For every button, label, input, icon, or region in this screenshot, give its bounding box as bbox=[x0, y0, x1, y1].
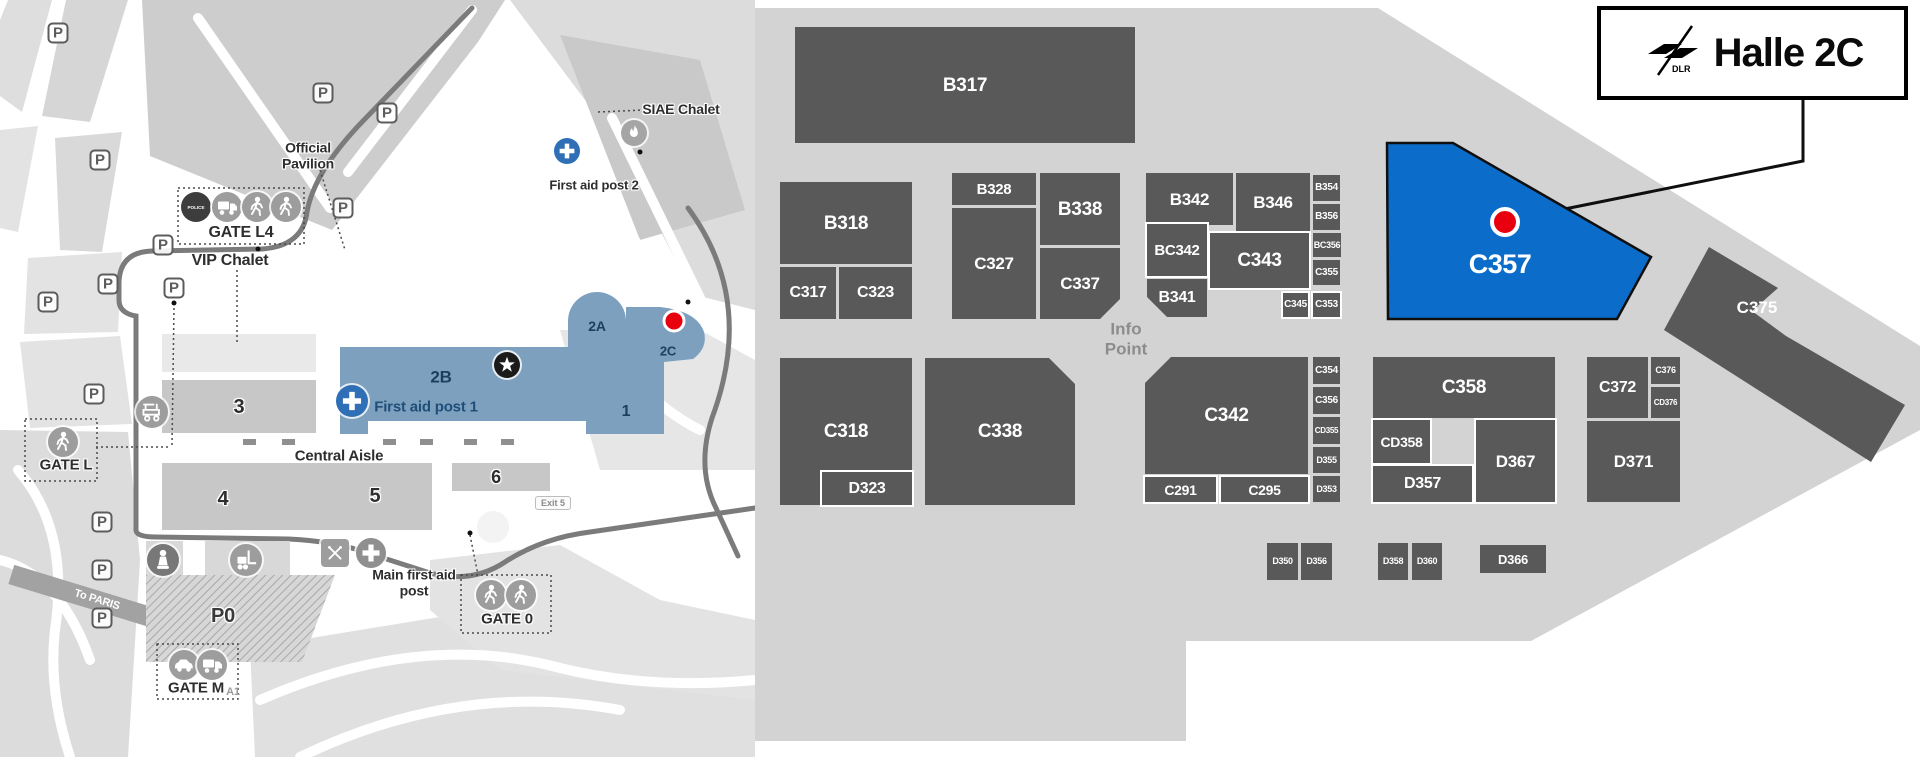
stand-c345: C345 bbox=[1283, 293, 1308, 317]
stand-d323: D323 bbox=[822, 472, 912, 505]
stand-d355: D355 bbox=[1313, 447, 1340, 473]
stand-d371: D371 bbox=[1587, 421, 1680, 502]
info-point-label: Info Point bbox=[1090, 319, 1162, 358]
screenshot-root: PPPPPPPPPPPPPPOLICEOfficial PavilionGATE… bbox=[0, 0, 1920, 757]
stand-c327: C327 bbox=[952, 208, 1036, 319]
stand-c295: C295 bbox=[1221, 477, 1308, 502]
stand-cd376: CD376 bbox=[1651, 387, 1680, 418]
stand-c353: C353 bbox=[1313, 293, 1340, 317]
stand-c355: C355 bbox=[1313, 260, 1340, 285]
svg-text:DLR: DLR bbox=[1672, 64, 1691, 74]
stand-b328: B328 bbox=[952, 173, 1036, 205]
stand-cd355: CD355 bbox=[1313, 417, 1340, 444]
stand-d360: D360 bbox=[1412, 543, 1442, 580]
stand-d356: D356 bbox=[1301, 543, 1332, 580]
stand-bc342: BC342 bbox=[1147, 224, 1207, 276]
dlr-logo-icon: DLR bbox=[1642, 23, 1704, 84]
stand-d366: D366 bbox=[1480, 545, 1546, 573]
stand-d357: D357 bbox=[1373, 466, 1472, 502]
halle-2c-legend: DLR Halle 2C bbox=[1597, 6, 1908, 100]
stand-c376: C376 bbox=[1651, 357, 1680, 384]
stand-b318: B318 bbox=[780, 182, 912, 264]
stand-b338: B338 bbox=[1040, 173, 1120, 245]
hall-map-stands: B317B318C317C323B328C327B338C337B342B346… bbox=[0, 0, 1920, 757]
stand-b346: B346 bbox=[1236, 173, 1310, 231]
stand-bc356: BC356 bbox=[1313, 233, 1341, 257]
stand-c356: C356 bbox=[1313, 387, 1340, 414]
stand-c323: C323 bbox=[839, 267, 912, 319]
stand-c338: C338 bbox=[925, 358, 1075, 505]
stand-d367: D367 bbox=[1476, 420, 1555, 502]
stand-c354: C354 bbox=[1313, 357, 1340, 384]
stand-b354: B354 bbox=[1313, 175, 1340, 201]
stand-b341: B341 bbox=[1147, 279, 1207, 317]
legend-title: Halle 2C bbox=[1714, 31, 1864, 76]
stand-b317: B317 bbox=[795, 27, 1135, 143]
stand-d350: D350 bbox=[1267, 543, 1298, 580]
stand-d353: D353 bbox=[1313, 476, 1340, 502]
stand-b356: B356 bbox=[1313, 204, 1340, 230]
stand-c317: C317 bbox=[780, 267, 836, 319]
stand-cd358: CD358 bbox=[1373, 420, 1430, 463]
stand-d358: D358 bbox=[1378, 543, 1408, 580]
stand-c372: C372 bbox=[1587, 357, 1648, 418]
stand-c343: C343 bbox=[1210, 233, 1309, 288]
stand-c358: C358 bbox=[1373, 357, 1555, 418]
stand-c342: C342 bbox=[1145, 357, 1308, 474]
stand-c337: C337 bbox=[1040, 248, 1120, 319]
stand-b342: B342 bbox=[1146, 173, 1233, 225]
stand-c291: C291 bbox=[1145, 477, 1216, 502]
